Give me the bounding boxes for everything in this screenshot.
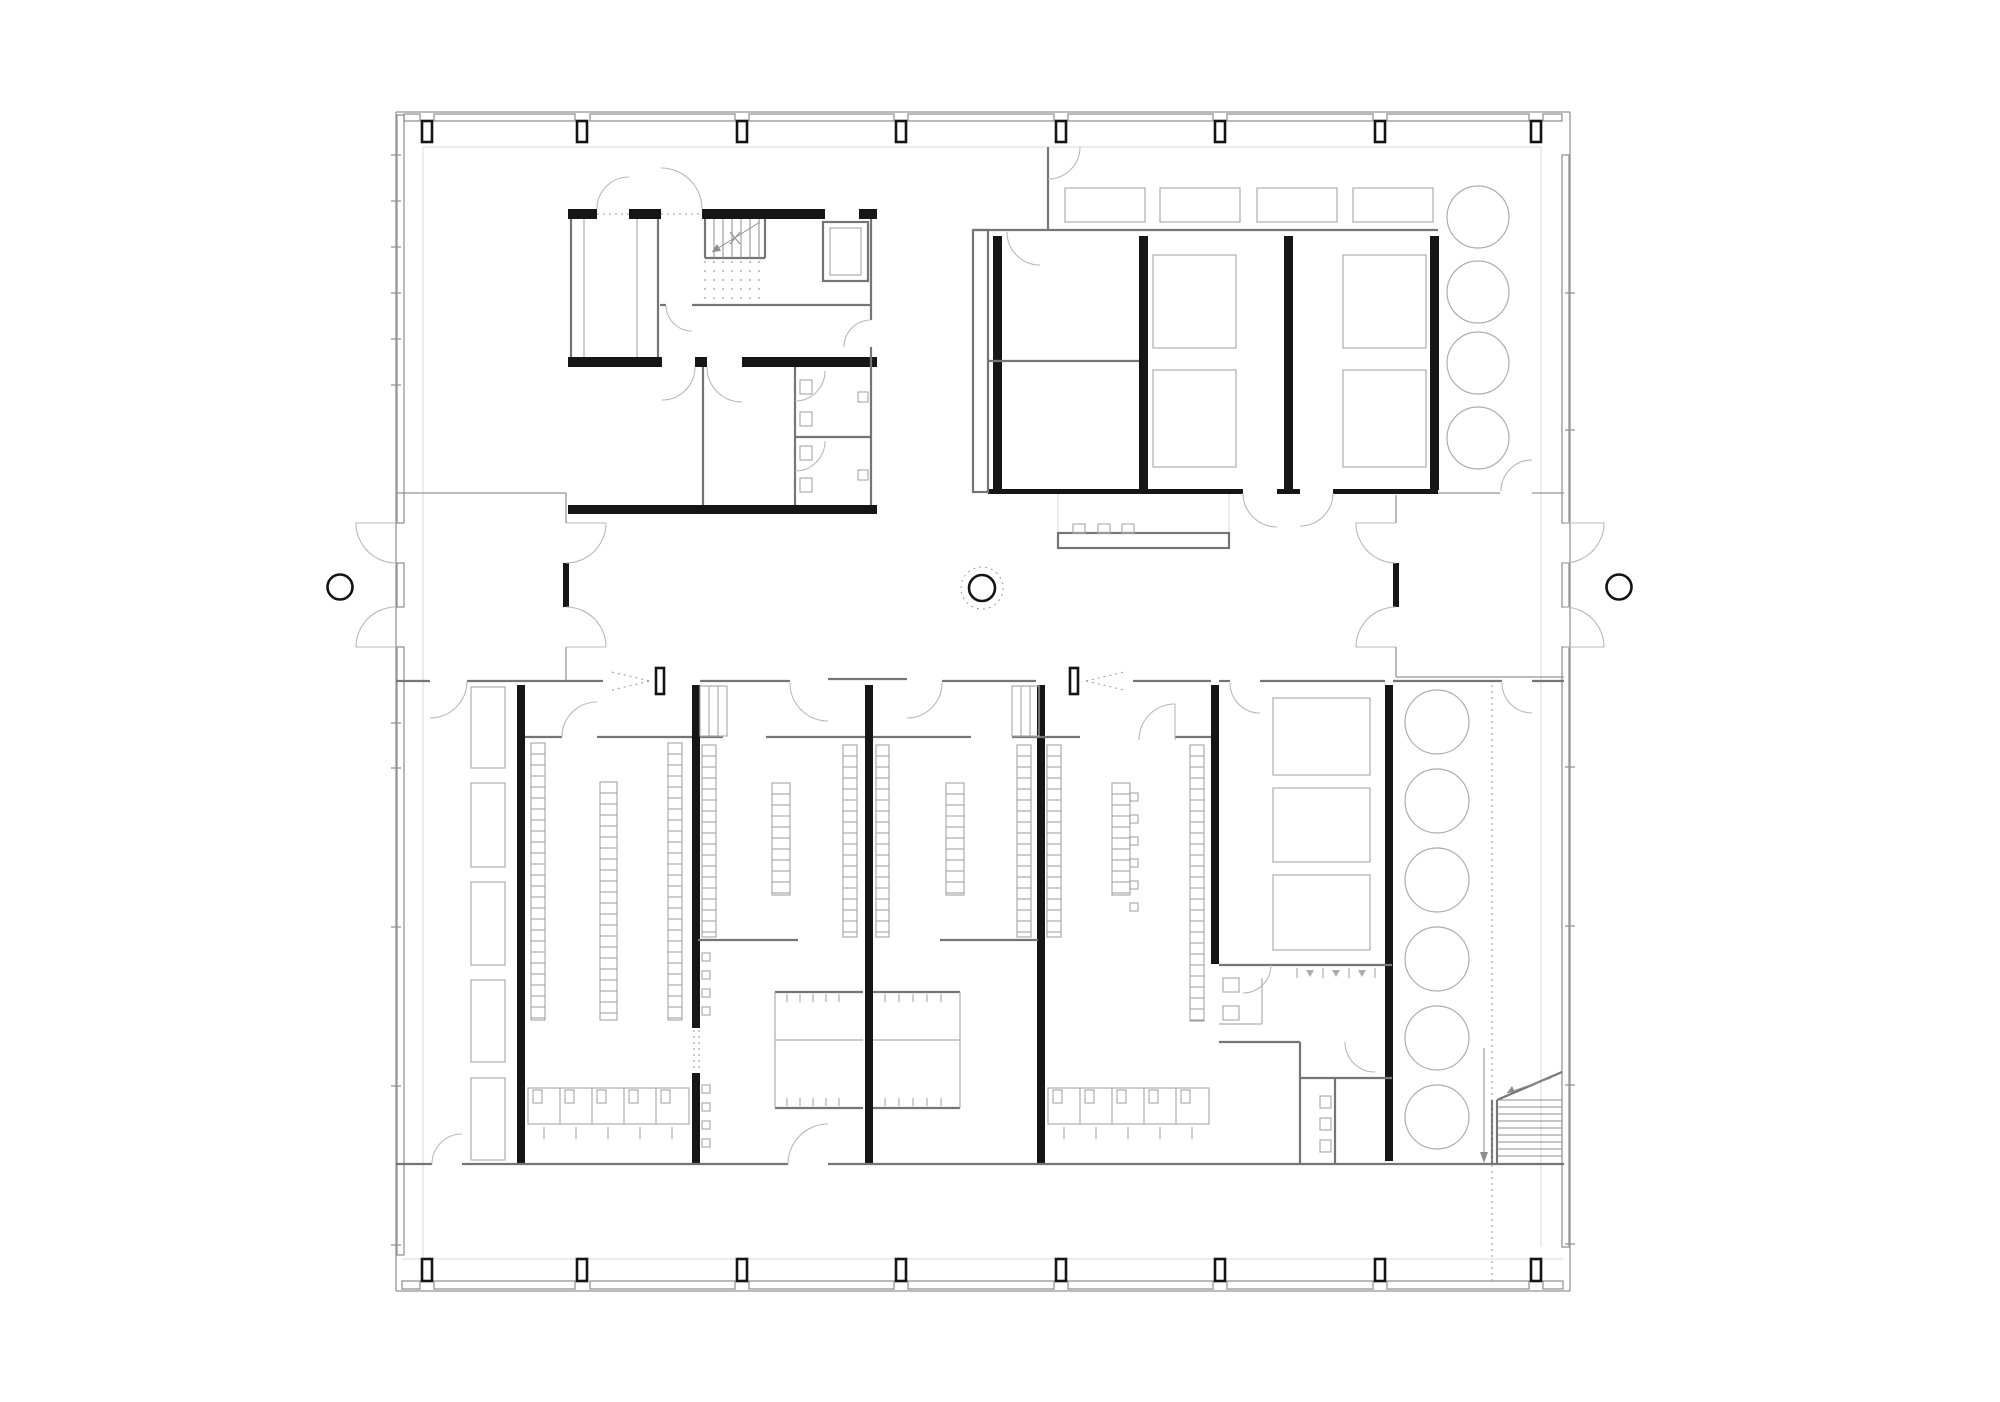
floor-plan-page (0, 0, 2000, 1402)
floor-plan-drawing (0, 0, 2000, 1402)
layer-accents-black (328, 575, 1632, 695)
layer-facade-columns (422, 121, 1541, 1281)
layer-doors (356, 147, 1604, 1164)
layer-shell (391, 112, 1575, 1291)
layer-furniture (471, 186, 1509, 1160)
